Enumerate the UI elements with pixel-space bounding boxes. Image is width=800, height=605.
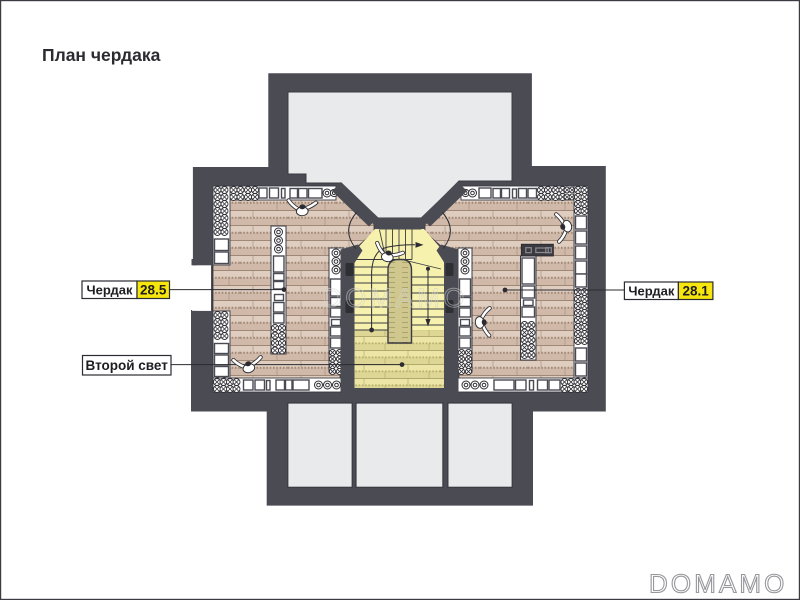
svg-text:DOMAMO: DOMAMO (322, 283, 468, 313)
svg-text:Чердак: Чердак (87, 283, 133, 298)
svg-text:28.5: 28.5 (140, 283, 167, 298)
svg-text:DOMAMO: DOMAMO (649, 569, 787, 599)
svg-text:План чердака: План чердака (42, 45, 161, 65)
svg-text:Второй свет: Второй свет (86, 358, 169, 373)
svg-text:Чердак: Чердак (628, 284, 674, 299)
svg-text:28.1: 28.1 (682, 284, 709, 299)
